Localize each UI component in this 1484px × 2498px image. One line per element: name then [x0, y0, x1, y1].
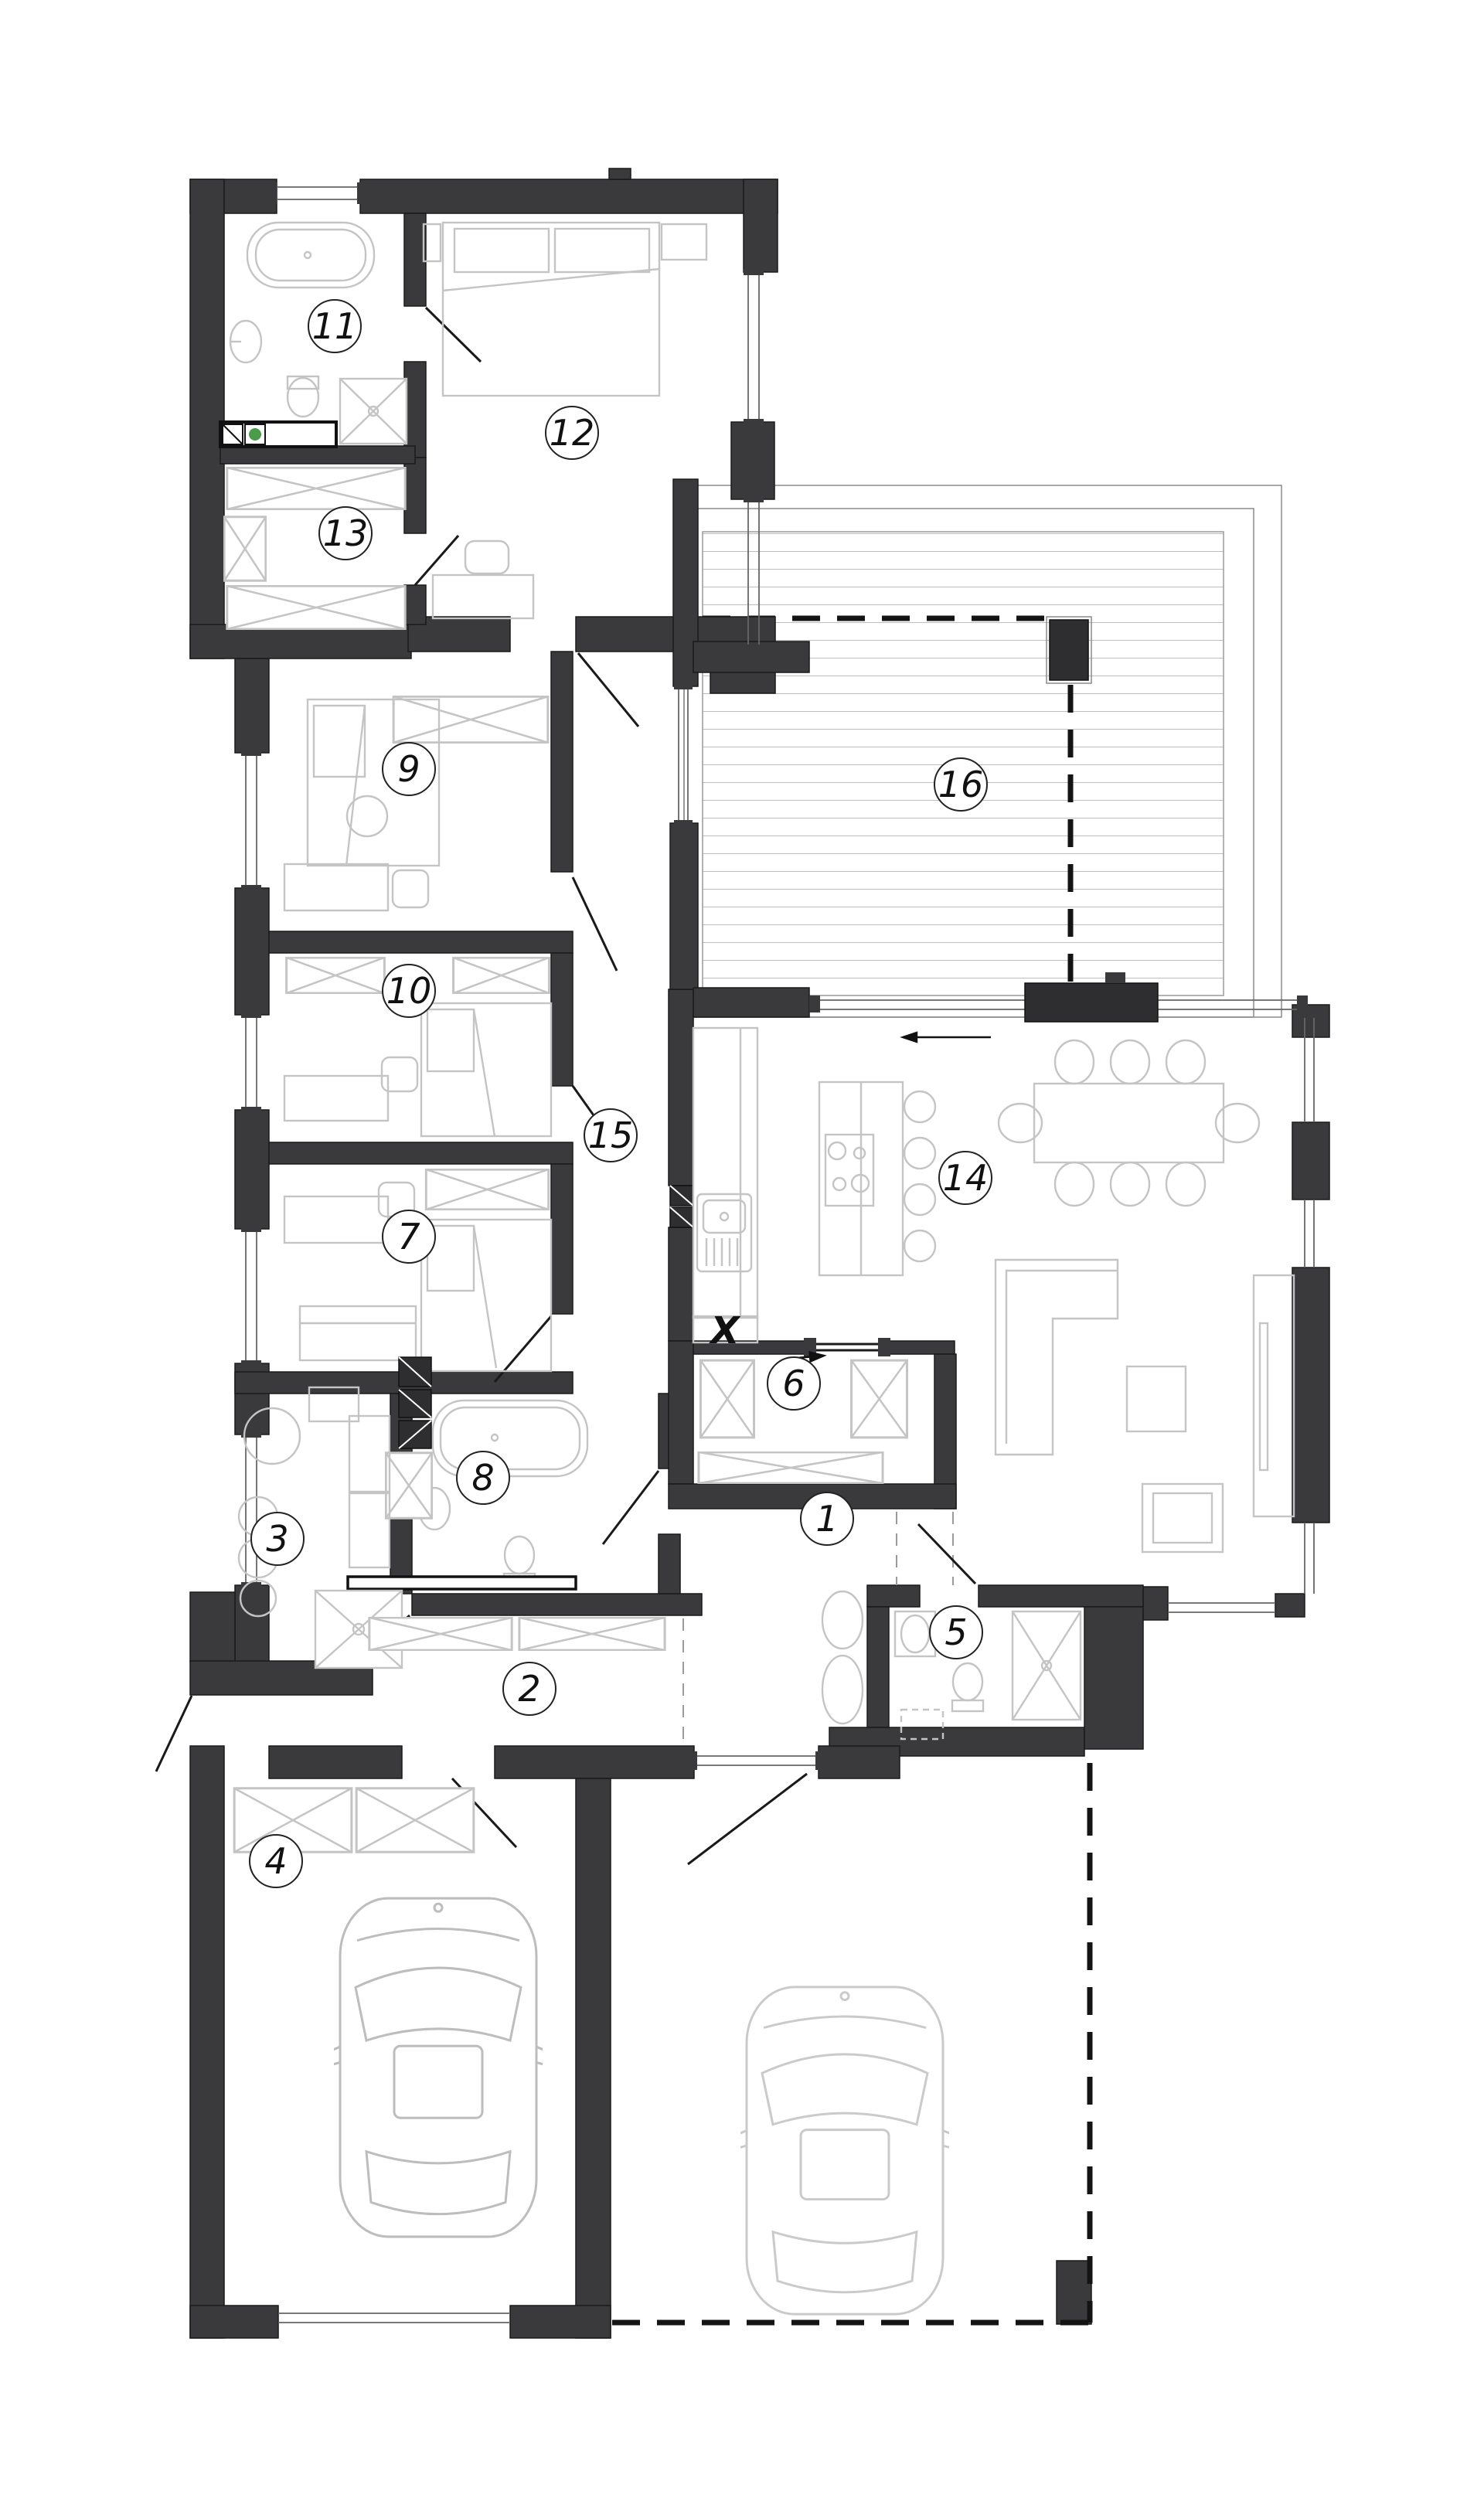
room-label-4: 4: [250, 1835, 302, 1887]
room-label-14: 14: [939, 1152, 992, 1204]
wardrobe: [287, 958, 385, 993]
svg-text:16: 16: [938, 764, 984, 805]
svg-text:3: 3: [266, 1518, 288, 1560]
room-label-9: 9: [383, 743, 435, 795]
svg-text:1: 1: [815, 1498, 838, 1540]
room-label-1: 1: [801, 1492, 853, 1545]
sliding-door-handle: [1105, 972, 1125, 983]
bench: [348, 1577, 576, 1589]
room-label-6: 6: [768, 1357, 820, 1410]
terrace-column: [1050, 620, 1088, 680]
svg-text:2: 2: [518, 1668, 540, 1710]
room-label-12: 12: [546, 407, 598, 459]
room-label-10: 10: [383, 965, 435, 1017]
wardrobe: [227, 468, 405, 509]
svg-text:12: 12: [550, 412, 595, 454]
svg-text:13: 13: [323, 512, 369, 554]
room-label-8: 8: [457, 1451, 509, 1504]
room-label-13: 13: [319, 507, 372, 560]
svg-text:8: 8: [471, 1457, 494, 1499]
room-label-2: 2: [503, 1662, 556, 1715]
wardrobe: [699, 1452, 883, 1483]
wardrobe: [700, 1360, 754, 1438]
wardrobe: [852, 1360, 907, 1438]
svg-text:9: 9: [397, 748, 420, 790]
room-label-3: 3: [251, 1513, 304, 1565]
sliding-door-panel: [1025, 983, 1158, 1022]
svg-text:10: 10: [386, 970, 432, 1012]
appliance-indicator: [249, 428, 261, 441]
wardrobe: [519, 1618, 665, 1650]
svg-text:4: 4: [264, 1840, 287, 1882]
svg-text:7: 7: [397, 1216, 420, 1258]
wardrobe: [426, 1169, 548, 1210]
terrace: [684, 485, 1281, 1017]
kitchen-appliance-marker: X: [708, 1309, 740, 1353]
wardrobe: [224, 517, 266, 581]
wardrobe: [227, 586, 405, 629]
svg-text:6: 6: [782, 1363, 805, 1404]
svg-text:11: 11: [312, 305, 358, 347]
floor-plan: 12345678910111213141516X: [0, 0, 1484, 2498]
wardrobe: [356, 1788, 474, 1853]
room-label-5: 5: [930, 1606, 982, 1659]
svg-text:15: 15: [588, 1115, 634, 1156]
wardrobe: [369, 1618, 512, 1650]
room-label-7: 7: [383, 1210, 435, 1263]
room-label-15: 15: [584, 1109, 637, 1162]
svg-text:14: 14: [943, 1157, 989, 1199]
svg-text:5: 5: [945, 1611, 967, 1653]
room-label-11: 11: [308, 300, 361, 352]
wardrobe: [393, 696, 548, 743]
room-label-16: 16: [934, 758, 987, 811]
wardrobe: [454, 958, 550, 993]
